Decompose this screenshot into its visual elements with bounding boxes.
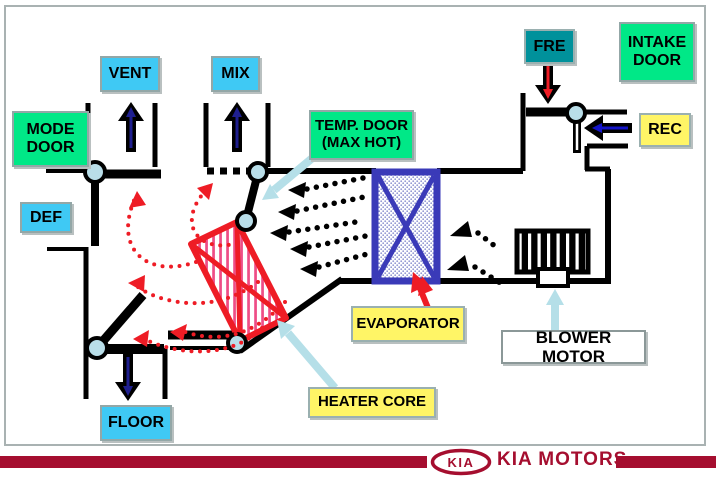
blower-motor-label: BLOWER MOTOR: [501, 330, 646, 364]
heater-core-pointer-arrow-icon: [277, 320, 335, 388]
evaporator-label: EVAPORATOR: [351, 306, 465, 342]
heater-core-label: HEATER CORE: [308, 387, 436, 418]
temp-door-label: TEMP. DOOR (MAX HOT): [309, 110, 414, 160]
fre-inlet-arrow-icon: [535, 60, 561, 104]
blower-motor: [517, 231, 588, 286]
evaporator: [375, 172, 437, 281]
mix-label: MIX: [211, 56, 260, 92]
hvac-diagram: VENT MIX MODE DOOR DEF TEMP. DOOR (MAX H…: [0, 0, 716, 478]
rec-label: REC: [639, 113, 691, 147]
kia-logo-text: KIA: [448, 455, 475, 470]
mix-flow-arrow-icon: [224, 102, 250, 152]
def-label: DEF: [20, 202, 72, 233]
floor-label: FLOOR: [100, 405, 172, 441]
kia-motors-brand-text: KIA MOTORS: [497, 449, 627, 471]
intake-door-label: INTAKE DOOR: [619, 22, 695, 82]
vent-flow-arrow-icon: [118, 102, 144, 152]
mode-door-label: MODE DOOR: [12, 111, 89, 167]
footer-bar-right: [616, 456, 716, 468]
vent-label: VENT: [100, 56, 160, 92]
rec-inlet-arrow-icon: [584, 115, 632, 141]
footer-bar-left: [0, 456, 427, 468]
floor-flow-arrow-icon: [115, 353, 141, 401]
kia-logo-icon: KIA: [430, 448, 494, 476]
fre-label: FRE: [524, 29, 575, 64]
